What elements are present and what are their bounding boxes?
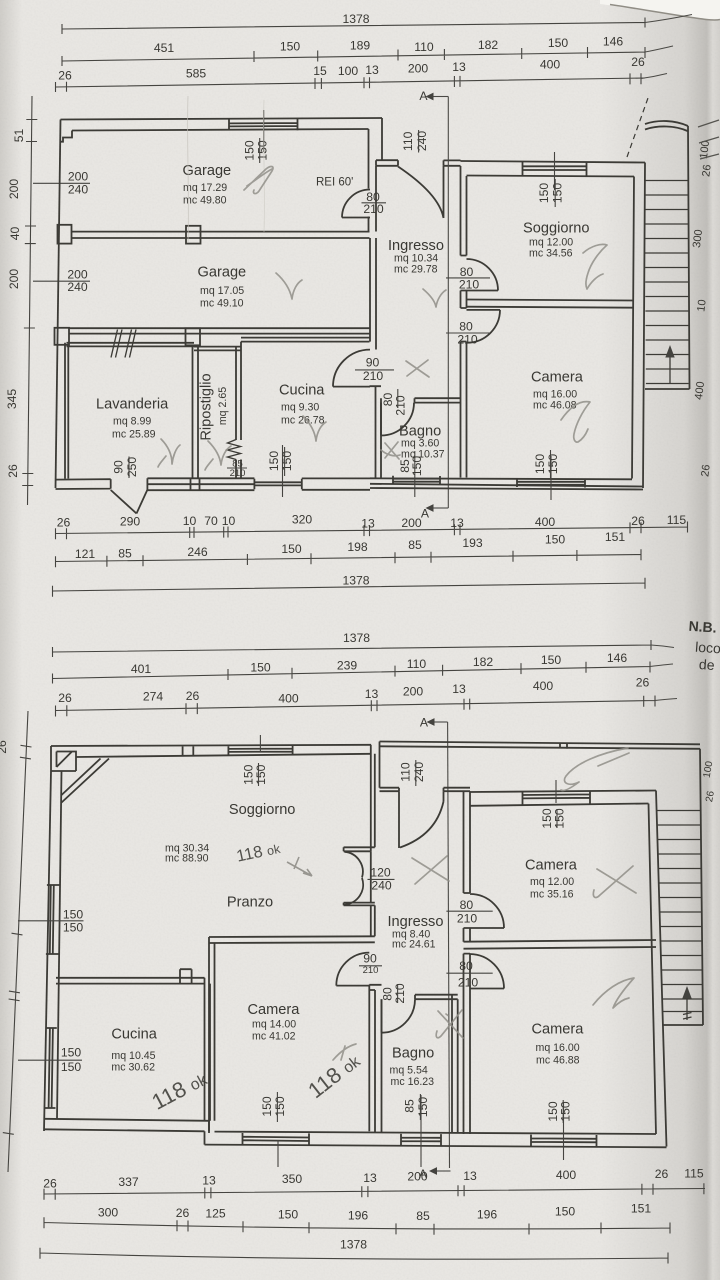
svg-text:13: 13 [365, 687, 379, 701]
svg-text:13: 13 [202, 1174, 216, 1188]
svg-text:150: 150 [256, 140, 270, 161]
svg-text:150: 150 [551, 183, 565, 204]
svg-text:10: 10 [695, 299, 708, 313]
svg-text:146: 146 [603, 35, 624, 49]
svg-text:182: 182 [478, 38, 499, 52]
svg-text:A: A [420, 716, 429, 730]
svg-text:240: 240 [415, 131, 429, 152]
svg-text:REI 60': REI 60' [316, 177, 353, 189]
svg-text:Soggiorno: Soggiorno [229, 802, 296, 818]
svg-text:51: 51 [12, 129, 26, 143]
svg-text:mc 16.23: mc 16.23 [391, 1076, 435, 1088]
svg-text:Camera: Camera [531, 370, 584, 386]
svg-text:150: 150 [254, 764, 268, 785]
svg-text:150: 150 [61, 1046, 82, 1060]
svg-text:240: 240 [68, 183, 89, 197]
svg-text:26: 26 [186, 689, 200, 703]
svg-text:210: 210 [230, 468, 246, 479]
svg-text:Cucina: Cucina [279, 383, 325, 399]
svg-text:200: 200 [408, 62, 429, 76]
svg-text:115: 115 [667, 513, 687, 527]
svg-text:Ripostiglio: Ripostiglio [199, 373, 215, 440]
svg-text:26: 26 [58, 69, 72, 83]
svg-text:400: 400 [535, 515, 556, 529]
svg-text:1378: 1378 [342, 12, 369, 26]
svg-text:Camera: Camera [525, 858, 578, 874]
svg-text:mc 30.62: mc 30.62 [111, 1062, 155, 1074]
svg-text:1378: 1378 [340, 1238, 367, 1252]
svg-text:mc 49.80: mc 49.80 [183, 195, 227, 207]
svg-text:26: 26 [655, 1167, 669, 1181]
svg-text:mq 17.05: mq 17.05 [200, 285, 244, 297]
svg-text:1378: 1378 [343, 631, 370, 645]
svg-text:200: 200 [407, 1170, 428, 1184]
svg-text:196: 196 [477, 1208, 498, 1222]
svg-text:151: 151 [605, 530, 626, 544]
svg-text:150: 150 [555, 1205, 576, 1219]
svg-text:150: 150 [63, 907, 84, 921]
svg-text:N.B. l: N.B. l [688, 618, 720, 636]
svg-text:mq 17.29: mq 17.29 [183, 182, 227, 194]
svg-text:26: 26 [699, 464, 712, 478]
svg-text:mc 25.89: mc 25.89 [112, 429, 156, 441]
svg-text:loco: loco [695, 639, 720, 657]
svg-text:200: 200 [7, 179, 21, 200]
svg-text:Soggiorno: Soggiorno [523, 221, 590, 237]
svg-text:121: 121 [75, 547, 96, 561]
svg-text:400: 400 [533, 679, 554, 693]
svg-text:80: 80 [460, 898, 474, 912]
svg-text:13: 13 [365, 63, 379, 77]
svg-text:110: 110 [401, 131, 415, 151]
svg-text:85: 85 [403, 1099, 417, 1113]
svg-text:210: 210 [457, 332, 478, 346]
svg-text:400: 400 [278, 692, 299, 706]
svg-text:150: 150 [278, 1208, 299, 1222]
svg-text:mq 14.00: mq 14.00 [252, 1019, 296, 1031]
svg-text:290: 290 [120, 515, 141, 529]
svg-text:Garage: Garage [183, 163, 232, 179]
svg-text:26: 26 [43, 1177, 57, 1191]
svg-text:150: 150 [61, 1060, 82, 1074]
svg-text:189: 189 [350, 39, 371, 53]
svg-text:15: 15 [313, 64, 327, 78]
svg-text:85: 85 [118, 547, 132, 561]
svg-text:350: 350 [282, 1172, 303, 1186]
svg-text:mq 9.30: mq 9.30 [281, 402, 319, 414]
svg-text:150: 150 [546, 454, 560, 475]
svg-text:150: 150 [280, 40, 301, 54]
svg-text:240: 240 [371, 878, 392, 892]
svg-text:150: 150 [273, 1096, 287, 1117]
svg-text:mq 10.45: mq 10.45 [111, 1050, 155, 1062]
svg-text:mc 29.78: mc 29.78 [394, 264, 438, 276]
svg-text:150: 150 [280, 451, 294, 472]
svg-text:13: 13 [361, 517, 375, 531]
svg-text:451: 451 [154, 41, 175, 55]
svg-text:26: 26 [176, 1206, 190, 1220]
svg-text:250: 250 [125, 457, 139, 478]
svg-text:13: 13 [363, 1171, 377, 1185]
svg-text:193: 193 [462, 536, 483, 550]
svg-text:mq 16.00: mq 16.00 [536, 1042, 580, 1054]
svg-text:400: 400 [556, 1168, 577, 1182]
svg-text:26: 26 [636, 676, 650, 690]
svg-text:100: 100 [338, 64, 359, 78]
svg-text:26: 26 [631, 514, 645, 528]
svg-text:300: 300 [691, 229, 705, 249]
svg-text:345: 345 [5, 389, 19, 410]
svg-text:Camera: Camera [248, 1002, 301, 1018]
svg-text:150: 150 [243, 140, 257, 161]
svg-text:mc 24.61: mc 24.61 [392, 939, 436, 951]
svg-text:26: 26 [58, 691, 72, 705]
svg-text:210: 210 [363, 202, 384, 216]
svg-text:Camera: Camera [532, 1022, 585, 1038]
svg-text:150: 150 [63, 920, 84, 934]
svg-text:mc 35.16: mc 35.16 [530, 889, 574, 901]
svg-text:26: 26 [631, 55, 645, 69]
svg-text:mc 46.88: mc 46.88 [536, 1055, 580, 1067]
svg-text:mc 34.56: mc 34.56 [529, 248, 573, 260]
svg-text:mq 2.65: mq 2.65 [217, 387, 229, 425]
svg-text:26: 26 [700, 164, 713, 178]
svg-text:Lavanderia: Lavanderia [96, 397, 169, 413]
svg-text:150: 150 [260, 1096, 274, 1117]
svg-text:Pranzo: Pranzo [227, 895, 273, 911]
svg-text:mc 41.02: mc 41.02 [252, 1031, 296, 1043]
svg-text:239: 239 [337, 659, 358, 673]
svg-text:337: 337 [118, 1175, 139, 1189]
svg-text:Cucina: Cucina [111, 1027, 157, 1043]
svg-text:13: 13 [452, 682, 466, 696]
svg-text:182: 182 [473, 655, 494, 669]
svg-text:150: 150 [281, 542, 302, 556]
svg-text:85: 85 [408, 538, 422, 552]
svg-text:151: 151 [631, 1202, 652, 1216]
svg-text:210: 210 [363, 369, 384, 383]
svg-text:10: 10 [183, 514, 197, 528]
svg-text:150: 150 [548, 36, 569, 50]
svg-text:200: 200 [401, 516, 422, 530]
svg-text:Bagno: Bagno [392, 1046, 434, 1062]
svg-text:150: 150 [533, 454, 547, 475]
svg-text:200: 200 [68, 170, 89, 184]
svg-text:150: 150 [541, 653, 562, 667]
svg-text:1378: 1378 [342, 574, 369, 588]
svg-text:210: 210 [393, 983, 407, 1004]
svg-text:150: 150 [545, 533, 566, 547]
svg-text:26: 26 [6, 464, 20, 478]
svg-text:mc 88.90: mc 88.90 [165, 853, 209, 865]
svg-text:150: 150 [267, 451, 281, 472]
svg-text:26: 26 [57, 516, 71, 530]
svg-text:198: 198 [347, 540, 368, 554]
svg-text:150: 150 [559, 1101, 573, 1122]
svg-text:320: 320 [292, 513, 313, 527]
svg-text:13: 13 [463, 1169, 477, 1183]
svg-text:mq 12.00: mq 12.00 [530, 876, 574, 888]
svg-text:110: 110 [399, 762, 413, 782]
svg-text:196: 196 [348, 1209, 369, 1223]
svg-text:Garage: Garage [198, 265, 247, 281]
svg-text:200: 200 [7, 269, 21, 290]
svg-text:400: 400 [540, 58, 561, 72]
svg-text:585: 585 [186, 67, 207, 81]
svg-text:246: 246 [187, 545, 208, 559]
svg-text:mq 8.99: mq 8.99 [113, 416, 151, 428]
svg-text:150: 150 [250, 661, 271, 675]
svg-text:274: 274 [143, 690, 164, 704]
svg-text:400: 400 [693, 381, 707, 401]
svg-text:125: 125 [205, 1207, 226, 1221]
svg-text:mq 5.54: mq 5.54 [390, 1065, 428, 1077]
svg-text:mc 10.37: mc 10.37 [401, 449, 445, 461]
svg-text:90: 90 [366, 356, 380, 370]
svg-text:210: 210 [459, 277, 480, 291]
svg-text:10: 10 [222, 514, 236, 528]
svg-text:de: de [698, 656, 715, 673]
svg-text:150: 150 [416, 1097, 430, 1118]
svg-text:401: 401 [131, 662, 152, 676]
svg-text:13: 13 [452, 60, 466, 74]
svg-text:80: 80 [459, 959, 473, 973]
svg-text:85: 85 [416, 1209, 430, 1223]
svg-text:210: 210 [363, 965, 379, 976]
svg-text:240: 240 [67, 280, 88, 294]
svg-text:70: 70 [204, 514, 218, 528]
svg-text:110: 110 [407, 657, 427, 671]
svg-text:40: 40 [8, 227, 22, 241]
svg-text:A: A [419, 89, 428, 103]
svg-text:150: 150 [537, 183, 551, 204]
svg-text:13: 13 [450, 516, 464, 530]
svg-text:mc 49.10: mc 49.10 [200, 298, 244, 310]
svg-text:146: 146 [607, 651, 628, 665]
svg-text:210: 210 [457, 912, 478, 926]
svg-text:210: 210 [394, 395, 408, 416]
svg-text:26: 26 [0, 740, 9, 754]
svg-text:240: 240 [412, 762, 426, 783]
svg-text:300: 300 [98, 1206, 119, 1220]
svg-text:90: 90 [111, 460, 125, 474]
svg-text:210: 210 [458, 976, 479, 990]
svg-text:110: 110 [414, 40, 434, 54]
svg-text:150: 150 [553, 808, 567, 829]
svg-text:A: A [421, 507, 430, 521]
svg-text:200: 200 [403, 685, 424, 699]
svg-text:115: 115 [684, 1167, 704, 1181]
